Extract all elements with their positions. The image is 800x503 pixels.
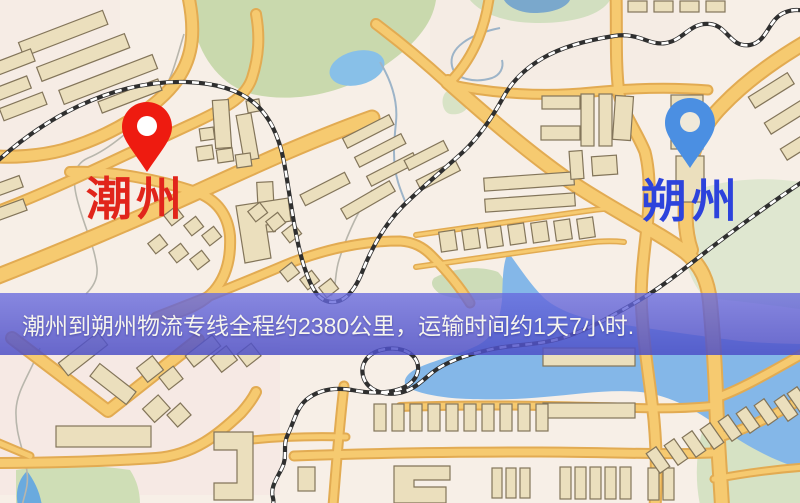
map-image: 潮州 朔州 潮州到朔州物流专线全程约2380公里，运输时间约1天7小时. bbox=[0, 0, 800, 503]
destination-pin-icon bbox=[664, 97, 716, 169]
route-info-banner: 潮州到朔州物流专线全程约2380公里，运输时间约1天7小时. bbox=[0, 293, 800, 355]
map-canvas bbox=[0, 0, 800, 503]
origin-city-label: 潮州 bbox=[86, 176, 186, 222]
route-info-text: 潮州到朔州物流专线全程约2380公里，运输时间约1天7小时. bbox=[22, 307, 634, 341]
destination-city-label: 朔州 bbox=[641, 178, 741, 224]
origin-pin-icon bbox=[121, 101, 173, 173]
